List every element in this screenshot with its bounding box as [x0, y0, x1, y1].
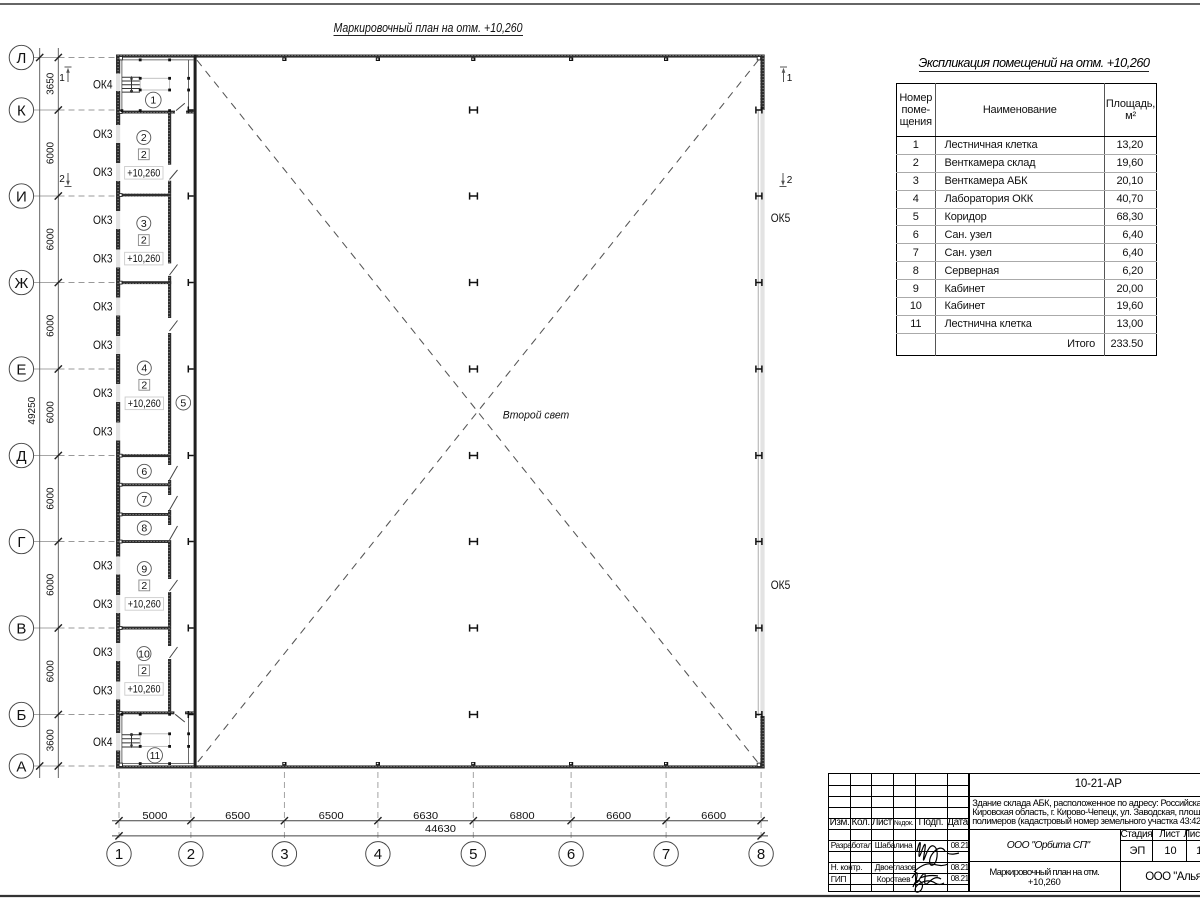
svg-text:6000: 6000: [46, 487, 57, 510]
svg-text:ОК3: ОК3: [93, 302, 113, 314]
svg-text:10: 10: [138, 648, 150, 660]
svg-text:+10,260: +10,260: [128, 599, 161, 611]
svg-text:6: 6: [567, 846, 575, 863]
svg-text:4: 4: [141, 363, 147, 375]
svg-text:7: 7: [662, 846, 670, 863]
svg-text:6630: 6630: [413, 811, 438, 822]
svg-text:6600: 6600: [606, 811, 631, 822]
svg-text:6000: 6000: [46, 228, 57, 251]
svg-text:6800: 6800: [510, 811, 535, 822]
svg-text:ОК4: ОК4: [93, 737, 113, 749]
svg-text:ОК3: ОК3: [93, 215, 113, 227]
svg-text:ОК3: ОК3: [93, 561, 113, 573]
svg-text:ОК3: ОК3: [93, 340, 113, 352]
svg-text:И: И: [16, 188, 27, 205]
svg-text:ОК5: ОК5: [771, 580, 791, 592]
svg-text:К: К: [17, 102, 26, 119]
svg-text:Г: Г: [17, 534, 25, 551]
svg-text:А: А: [16, 758, 26, 775]
svg-text:4: 4: [374, 846, 382, 863]
svg-text:2: 2: [141, 149, 147, 161]
svg-text:ОК5: ОК5: [771, 213, 791, 225]
svg-text:1: 1: [59, 73, 65, 84]
svg-text:2: 2: [141, 235, 147, 247]
svg-text:ОК3: ОК3: [93, 427, 113, 439]
svg-text:Маркировочный план на отм. +10: Маркировочный план на отм. +10,260: [334, 20, 524, 35]
svg-text:ОК3: ОК3: [93, 599, 113, 611]
svg-text:49250: 49250: [27, 396, 38, 424]
svg-text:3650: 3650: [46, 72, 57, 95]
svg-text:Л: Л: [16, 50, 26, 67]
svg-text:5: 5: [469, 846, 477, 863]
svg-text:2: 2: [787, 175, 793, 186]
svg-text:9: 9: [141, 563, 147, 575]
svg-text:5000: 5000: [142, 811, 167, 822]
svg-text:ОК4: ОК4: [93, 79, 113, 91]
svg-text:8: 8: [757, 846, 765, 863]
svg-text:6000: 6000: [46, 660, 57, 683]
svg-text:2: 2: [141, 132, 147, 144]
svg-text:7: 7: [141, 494, 147, 506]
svg-text:Ж: Ж: [14, 275, 28, 292]
svg-text:ОК3: ОК3: [93, 254, 113, 266]
svg-text:11: 11: [150, 751, 161, 762]
svg-text:ОК3: ОК3: [93, 129, 113, 141]
svg-text:2: 2: [141, 665, 147, 677]
svg-text:Е: Е: [16, 361, 26, 378]
svg-text:6000: 6000: [46, 141, 57, 164]
svg-text:1: 1: [787, 73, 793, 84]
svg-text:44630: 44630: [425, 824, 456, 835]
svg-text:1: 1: [150, 95, 156, 107]
svg-text:2: 2: [59, 174, 65, 185]
svg-text:Д: Д: [16, 448, 26, 465]
svg-text:В: В: [16, 620, 26, 637]
svg-text:+10,260: +10,260: [128, 398, 161, 410]
svg-text:6000: 6000: [46, 573, 57, 596]
svg-text:3600: 3600: [46, 729, 57, 752]
svg-text:6000: 6000: [46, 314, 57, 337]
svg-text:ОК3: ОК3: [93, 686, 113, 698]
svg-text:2: 2: [141, 580, 147, 592]
svg-text:+10,260: +10,260: [128, 684, 161, 696]
svg-text:+10,260: +10,260: [127, 167, 160, 179]
svg-text:ОК3: ОК3: [93, 388, 113, 400]
svg-text:ОК3: ОК3: [93, 167, 113, 179]
svg-text:2: 2: [187, 846, 195, 863]
svg-text:6500: 6500: [225, 811, 250, 822]
svg-text:3: 3: [280, 846, 288, 863]
svg-text:+10,260: +10,260: [127, 253, 160, 265]
svg-text:6000: 6000: [46, 401, 57, 424]
svg-text:8: 8: [141, 523, 147, 535]
svg-text:1: 1: [115, 846, 123, 863]
svg-text:2: 2: [141, 379, 147, 391]
svg-text:ОК3: ОК3: [93, 647, 113, 659]
svg-text:6500: 6500: [319, 811, 344, 822]
svg-text:Второй свет: Второй свет: [503, 409, 570, 421]
svg-text:5: 5: [180, 397, 186, 409]
svg-text:3: 3: [141, 218, 147, 230]
svg-text:6: 6: [141, 466, 147, 478]
svg-text:Б: Б: [16, 707, 26, 724]
